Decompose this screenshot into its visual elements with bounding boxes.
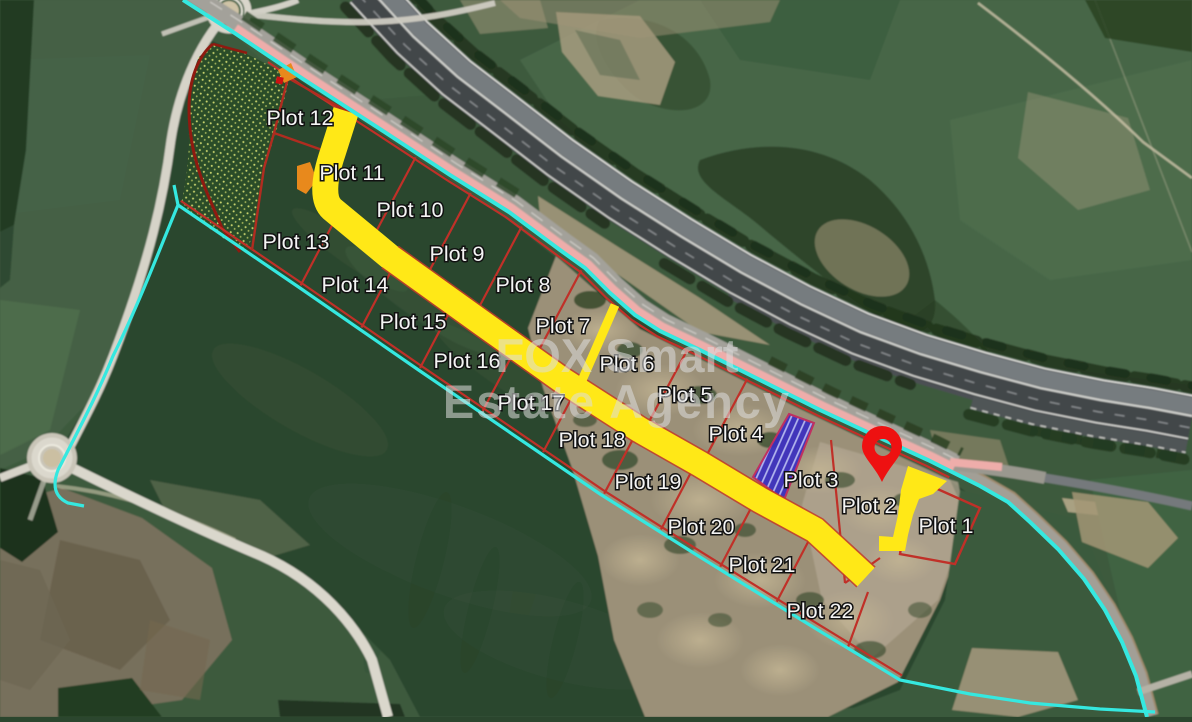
svg-text:Estate Agency: Estate Agency — [443, 375, 791, 428]
svg-text:Plot 2: Plot 2 — [842, 494, 897, 518]
svg-text:Plot 16: Plot 16 — [434, 349, 501, 373]
svg-text:Plot 20: Plot 20 — [668, 515, 735, 539]
svg-text:Plot 8: Plot 8 — [496, 273, 551, 297]
svg-text:Plot 11: Plot 11 — [319, 161, 384, 185]
svg-text:Plot 3: Plot 3 — [784, 468, 839, 492]
svg-text:Plot 18: Plot 18 — [559, 428, 626, 452]
svg-text:Plot 12: Plot 12 — [267, 106, 334, 130]
svg-text:Plot 22: Plot 22 — [787, 599, 854, 623]
svg-text:Plot 19: Plot 19 — [615, 470, 682, 494]
svg-text:Plot 1: Plot 1 — [919, 514, 974, 538]
svg-text:Plot 9: Plot 9 — [430, 242, 485, 266]
svg-text:Plot 14: Plot 14 — [322, 273, 389, 297]
svg-text:Plot 21: Plot 21 — [729, 553, 796, 577]
svg-text:Plot 13: Plot 13 — [263, 230, 330, 254]
svg-text:Plot 15: Plot 15 — [380, 310, 447, 334]
svg-text:Plot 10: Plot 10 — [377, 198, 444, 222]
